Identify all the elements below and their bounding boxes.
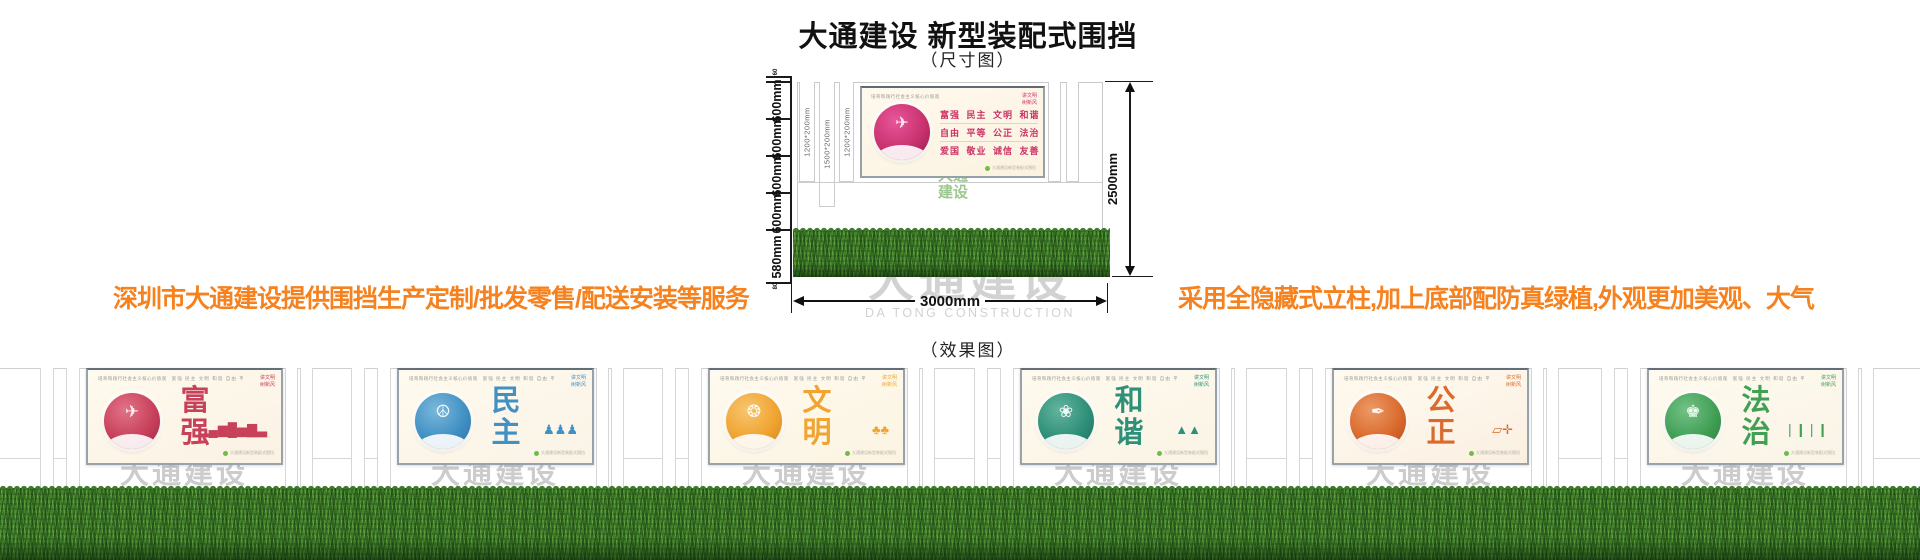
values-row: 爱国 敬业 诚信 友善 (940, 142, 1038, 159)
arrow-left-icon (793, 296, 804, 306)
people-figures-icon: ♟♟♟ (543, 423, 578, 436)
extension-line (1112, 276, 1153, 277)
fence-post (285, 368, 298, 490)
fence-post (1286, 368, 1300, 490)
fence-post (1861, 368, 1874, 490)
trees-icon: ♣♣ (872, 423, 889, 436)
papercut-glyph-icon: ✒ (1350, 402, 1406, 422)
left-tagline: 深圳市大通建设提供围挡生产定制/批发零售/配送安装等服务 (113, 279, 749, 315)
fence-post (1546, 368, 1559, 490)
green-dot-icon (845, 451, 850, 456)
panel-footnote: 大通建设新型装配式围挡 (1784, 450, 1835, 456)
panel-header-text: 培育和践行社会主义核心价值观富强 民主 文明 和谐 自由 平等 公正 法治 爱国… (1032, 376, 1177, 382)
arrow-up-icon (1125, 82, 1135, 92)
green-dot-icon (223, 451, 228, 456)
wall-joint-line (1547, 458, 1629, 459)
theme-word: 法治 (1739, 385, 1773, 450)
green-dot-icon (1157, 451, 1162, 456)
papercut-glyph-icon: ♚ (1665, 402, 1721, 422)
effect-caption: （效果图） (16, 336, 1920, 361)
fence-post (40, 368, 54, 490)
height-ruler-line (790, 76, 792, 284)
panel-header-text: 培育和践行社会主义核心价值观富强 民主 文明 和谐 自由 平等 公正 法治 爱国… (1659, 376, 1804, 382)
arrow-right-icon (1096, 296, 1107, 306)
core-values-text: 富强 民主 文明 和谐 自由 平等 公正 法治 爱国 敬业 诚信 友善 (940, 106, 1038, 159)
fence-post (1531, 368, 1544, 490)
hidden-post-1200: 1200*200mm (799, 82, 815, 182)
hedge-strip-diagram (793, 230, 1110, 277)
arrow-down-icon (1125, 266, 1135, 276)
fence-post (1627, 368, 1641, 490)
footnote-text: 大通建设新型装配式围挡 (541, 450, 585, 456)
theme-word: 公正 (1424, 385, 1458, 450)
theme-word: 富强 (178, 385, 212, 450)
extension-line (791, 283, 792, 313)
panel-footnote: 大通建设新型装配式围挡 (1469, 450, 1520, 456)
city-skyline-icon: ▂▄▆█▅▇▃ (199, 423, 267, 436)
fence-post (1219, 368, 1232, 490)
poster-canvas: 大通建设 新型装配式围挡 （尺寸图） （效果图） 深圳市大通建设提供围挡生产定制… (0, 0, 1920, 560)
panel-header-text: 培育和践行社会主义核心价值观富强 民主 文明 和谐 自由 平等 公正 法治 爱国… (409, 376, 554, 382)
fence-post (1312, 368, 1326, 490)
billboard-panel: 培育和践行社会主义核心价值观富强 民主 文明 和谐 自由 平等 公正 法治 爱国… (708, 368, 905, 465)
height-dimension-line (1129, 90, 1131, 268)
dimension-caption: （尺寸图） (16, 46, 1920, 71)
civility-slogan: 讲文明 树新风 (1821, 375, 1836, 389)
slogan-line: 讲文明 (1022, 93, 1037, 100)
panel-header-text: 培育和践行社会主义核心价值观富强 民主 文明 和谐 自由 平等 公正 法治 爱国… (1344, 376, 1489, 382)
footnote-text: 大通建设新型装配式围挡 (1791, 450, 1835, 456)
billboard-panel: 培育和践行社会主义核心价值观富强 民主 文明 和谐 自由 平等 公正 法治 爱国… (1332, 368, 1529, 465)
wall-joint-line (0, 458, 68, 459)
panel-header-text: 培育和践行社会主义核心价值观 (871, 94, 940, 100)
green-dot-icon (534, 451, 539, 456)
papercut-glyph-icon: ❀ (1038, 402, 1094, 422)
green-dot-icon (1469, 451, 1474, 456)
civility-slogan: 讲文明 树新风 (571, 375, 586, 389)
billboard-panel: 培育和践行社会主义核心价值观富强 民主 文明 和谐 自由 平等 公正 法治 爱国… (397, 368, 594, 465)
hidden-post (1066, 82, 1079, 182)
fence-post (596, 368, 609, 490)
panel-footnote: 大通建设新型装配式围挡 (534, 450, 585, 456)
post-size-label: 1500*200mm (823, 119, 832, 169)
fence-post (907, 368, 920, 490)
green-dot-icon (985, 166, 990, 171)
papercut-glyph-icon: ✈ (874, 113, 930, 133)
theme-word: 民主 (489, 385, 523, 450)
segment-label-small: 80 (772, 273, 780, 299)
total-height-label: 2500mm (1106, 149, 1120, 209)
hedge-strip (0, 488, 1920, 560)
width-dimension-line: 3000mm (793, 293, 1107, 309)
civility-papercut-icon: ❂ (726, 393, 782, 449)
green-dot-icon (1784, 451, 1789, 456)
theme-word: 和谐 (1112, 385, 1146, 450)
civility-slogan: 讲文明 树新风 (1022, 93, 1037, 107)
fence-post (1234, 368, 1247, 490)
mountains-icon: ▲▲ (1175, 423, 1201, 436)
fence-post (688, 368, 702, 490)
bamboo-icon: ❘❙❘❙ (1784, 423, 1828, 436)
panel-header-text: 培育和践行社会主义核心价值观富强 民主 文明 和谐 自由 平等 公正 法治 爱国… (720, 376, 865, 382)
panel-footnote: 大通建设新型装配式围挡 (845, 450, 896, 456)
panel-footnote: 大通建设新型装配式围挡 (1157, 450, 1208, 456)
billboard-panel: 培育和践行社会主义核心价值观富强 民主 文明 和谐 自由 平等 公正 法治 爱国… (86, 368, 283, 465)
fence-post (974, 368, 988, 490)
justice-papercut-icon: ✒ (1350, 393, 1406, 449)
hidden-post-1500: 1500*200mm (819, 82, 835, 207)
papercut-glyph-icon: ✈ (104, 402, 160, 422)
harmony-papercut-icon: ❀ (1038, 393, 1094, 449)
hidden-post (1048, 82, 1061, 182)
total-width-label: 3000mm (915, 293, 985, 310)
billboard-panel: 培育和践行社会主义核心价值观富强 民主 文明 和谐 自由 平等 公正 法治 爱国… (1647, 368, 1844, 465)
core-values-billboard: 培育和践行社会主义核心价值观 讲文明 树新风 ✈ 富强 民主 文明 和谐 自由 … (860, 86, 1045, 178)
panel-header-text: 培育和践行社会主义核心价值观富强 民主 文明 和谐 自由 平等 公正 法治 爱国… (98, 376, 243, 382)
fence-post (66, 368, 80, 490)
fence-post (300, 368, 313, 490)
papercut-glyph-icon: ☮ (415, 402, 471, 422)
footnote-text: 大通建设新型装配式围挡 (1164, 450, 1208, 456)
fence-post (351, 368, 365, 490)
civility-slogan: 讲文明 树新风 (1506, 375, 1521, 389)
democracy-papercut-icon: ☮ (415, 393, 471, 449)
civility-slogan: 讲文明 树新风 (260, 375, 275, 389)
theme-word: 文明 (800, 385, 834, 450)
billboard-panel: 培育和践行社会主义核心价值观富强 民主 文明 和谐 自由 平等 公正 法治 爱国… (1020, 368, 1217, 465)
civility-slogan: 讲文明 树新风 (1194, 375, 1209, 389)
values-row: 富强 民主 文明 和谐 (940, 106, 1038, 124)
fence-post (1000, 368, 1014, 490)
fence-post (922, 368, 935, 490)
fence-post (1601, 368, 1615, 490)
rule-of-law-papercut-icon: ♚ (1665, 393, 1721, 449)
papercut-glyph-icon: ❂ (726, 402, 782, 422)
civility-slogan: 讲文明 树新风 (882, 375, 897, 389)
footnote-text: 大通建设新型装配式围挡 (230, 450, 274, 456)
extension-line (1107, 283, 1108, 313)
segment-label-580: 580mm (770, 235, 784, 279)
footnote-text: 大通建设新型装配式围挡 (852, 450, 896, 456)
footnote-text: 大通建设新型装配式围挡 (1476, 450, 1520, 456)
fence-post (377, 368, 391, 490)
values-row: 自由 平等 公正 法治 (940, 124, 1038, 142)
footnote-text: 大通建设新型装配式围挡 (992, 165, 1036, 171)
segment-label-600: 600mm (770, 190, 784, 234)
book-gavel-icon: ▱✛ (1492, 423, 1513, 436)
post-size-label: 1200*200mm (842, 107, 851, 157)
post-size-label: 1200*200mm (803, 107, 812, 157)
right-tagline: 采用全隐藏式立柱,加上底部配防真绿植,外观更加美观、大气 (1178, 279, 1814, 315)
core-values-papercut-icon: ✈ (874, 104, 930, 160)
fence-post (1846, 368, 1859, 490)
fence-post (662, 368, 676, 490)
prosperity-papercut-icon: ✈ (104, 393, 160, 449)
fence-post (611, 368, 624, 490)
panel-footnote: 大通建设新型装配式围挡 (223, 450, 274, 456)
hidden-post-1200: 1200*200mm (839, 82, 854, 182)
panel-footnote: 大通建设新型装配式围挡 (985, 165, 1036, 171)
